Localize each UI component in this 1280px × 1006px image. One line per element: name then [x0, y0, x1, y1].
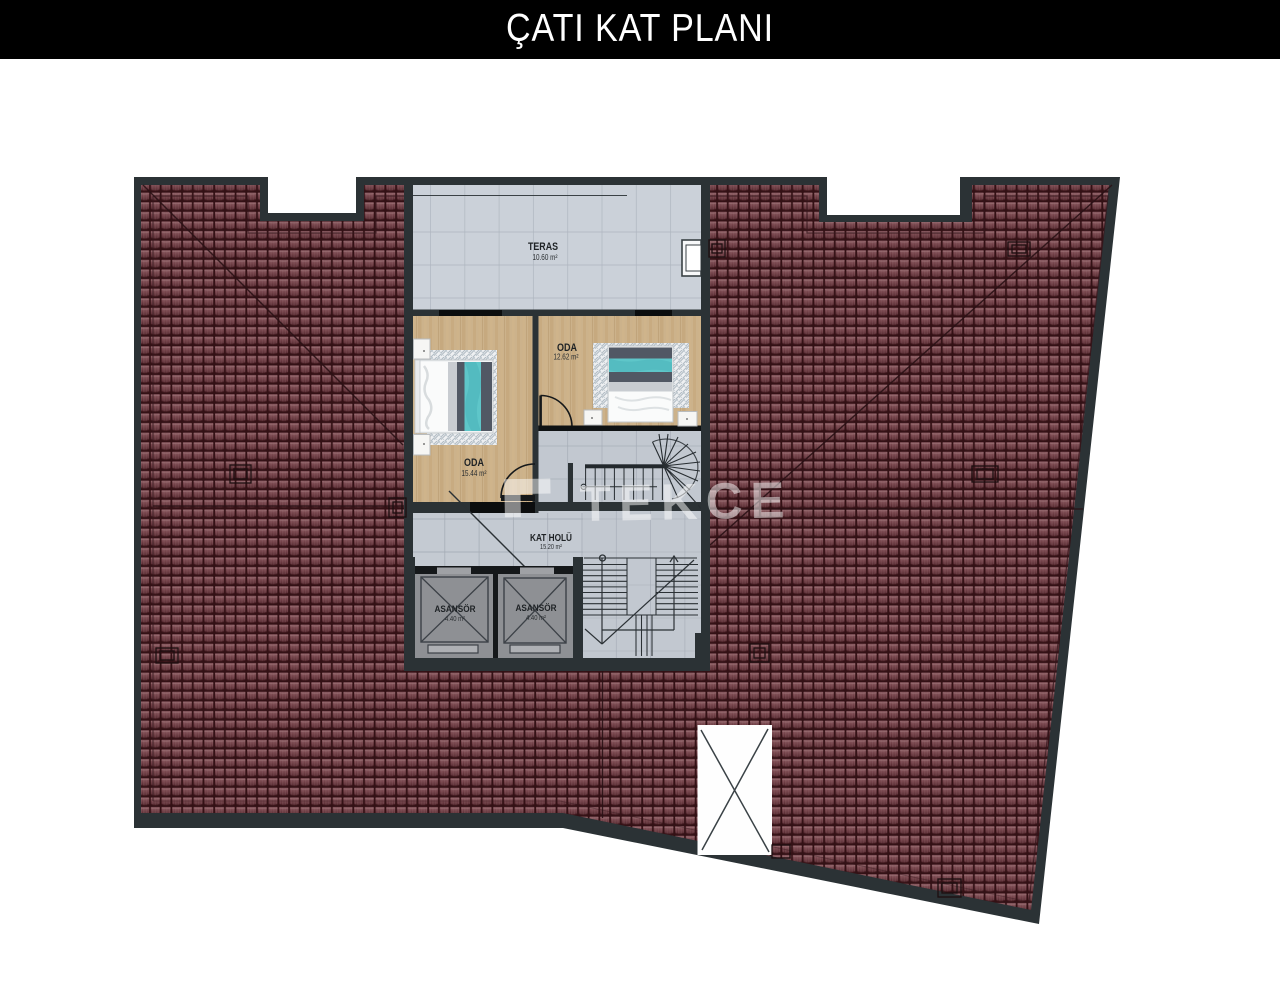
svg-text:ASANSÖR: ASANSÖR [516, 603, 557, 613]
svg-text:15.44 m²: 15.44 m² [462, 469, 487, 478]
svg-text:4.40 m²: 4.40 m² [526, 615, 547, 622]
svg-text:4.40 m²: 4.40 m² [445, 616, 466, 623]
svg-text:ODA: ODA [464, 457, 484, 469]
svg-text:10.60 m²: 10.60 m² [533, 253, 558, 262]
svg-text:15.20 m²: 15.20 m² [540, 542, 562, 551]
svg-text:TERAS: TERAS [528, 241, 558, 253]
svg-text:TEKCE: TEKCE [579, 471, 793, 532]
svg-text:ÇATI KAT PLANI: ÇATI KAT PLANI [506, 7, 774, 50]
svg-text:12.62 m²: 12.62 m² [554, 353, 579, 362]
svg-text:ASANSÖR: ASANSÖR [435, 604, 476, 614]
